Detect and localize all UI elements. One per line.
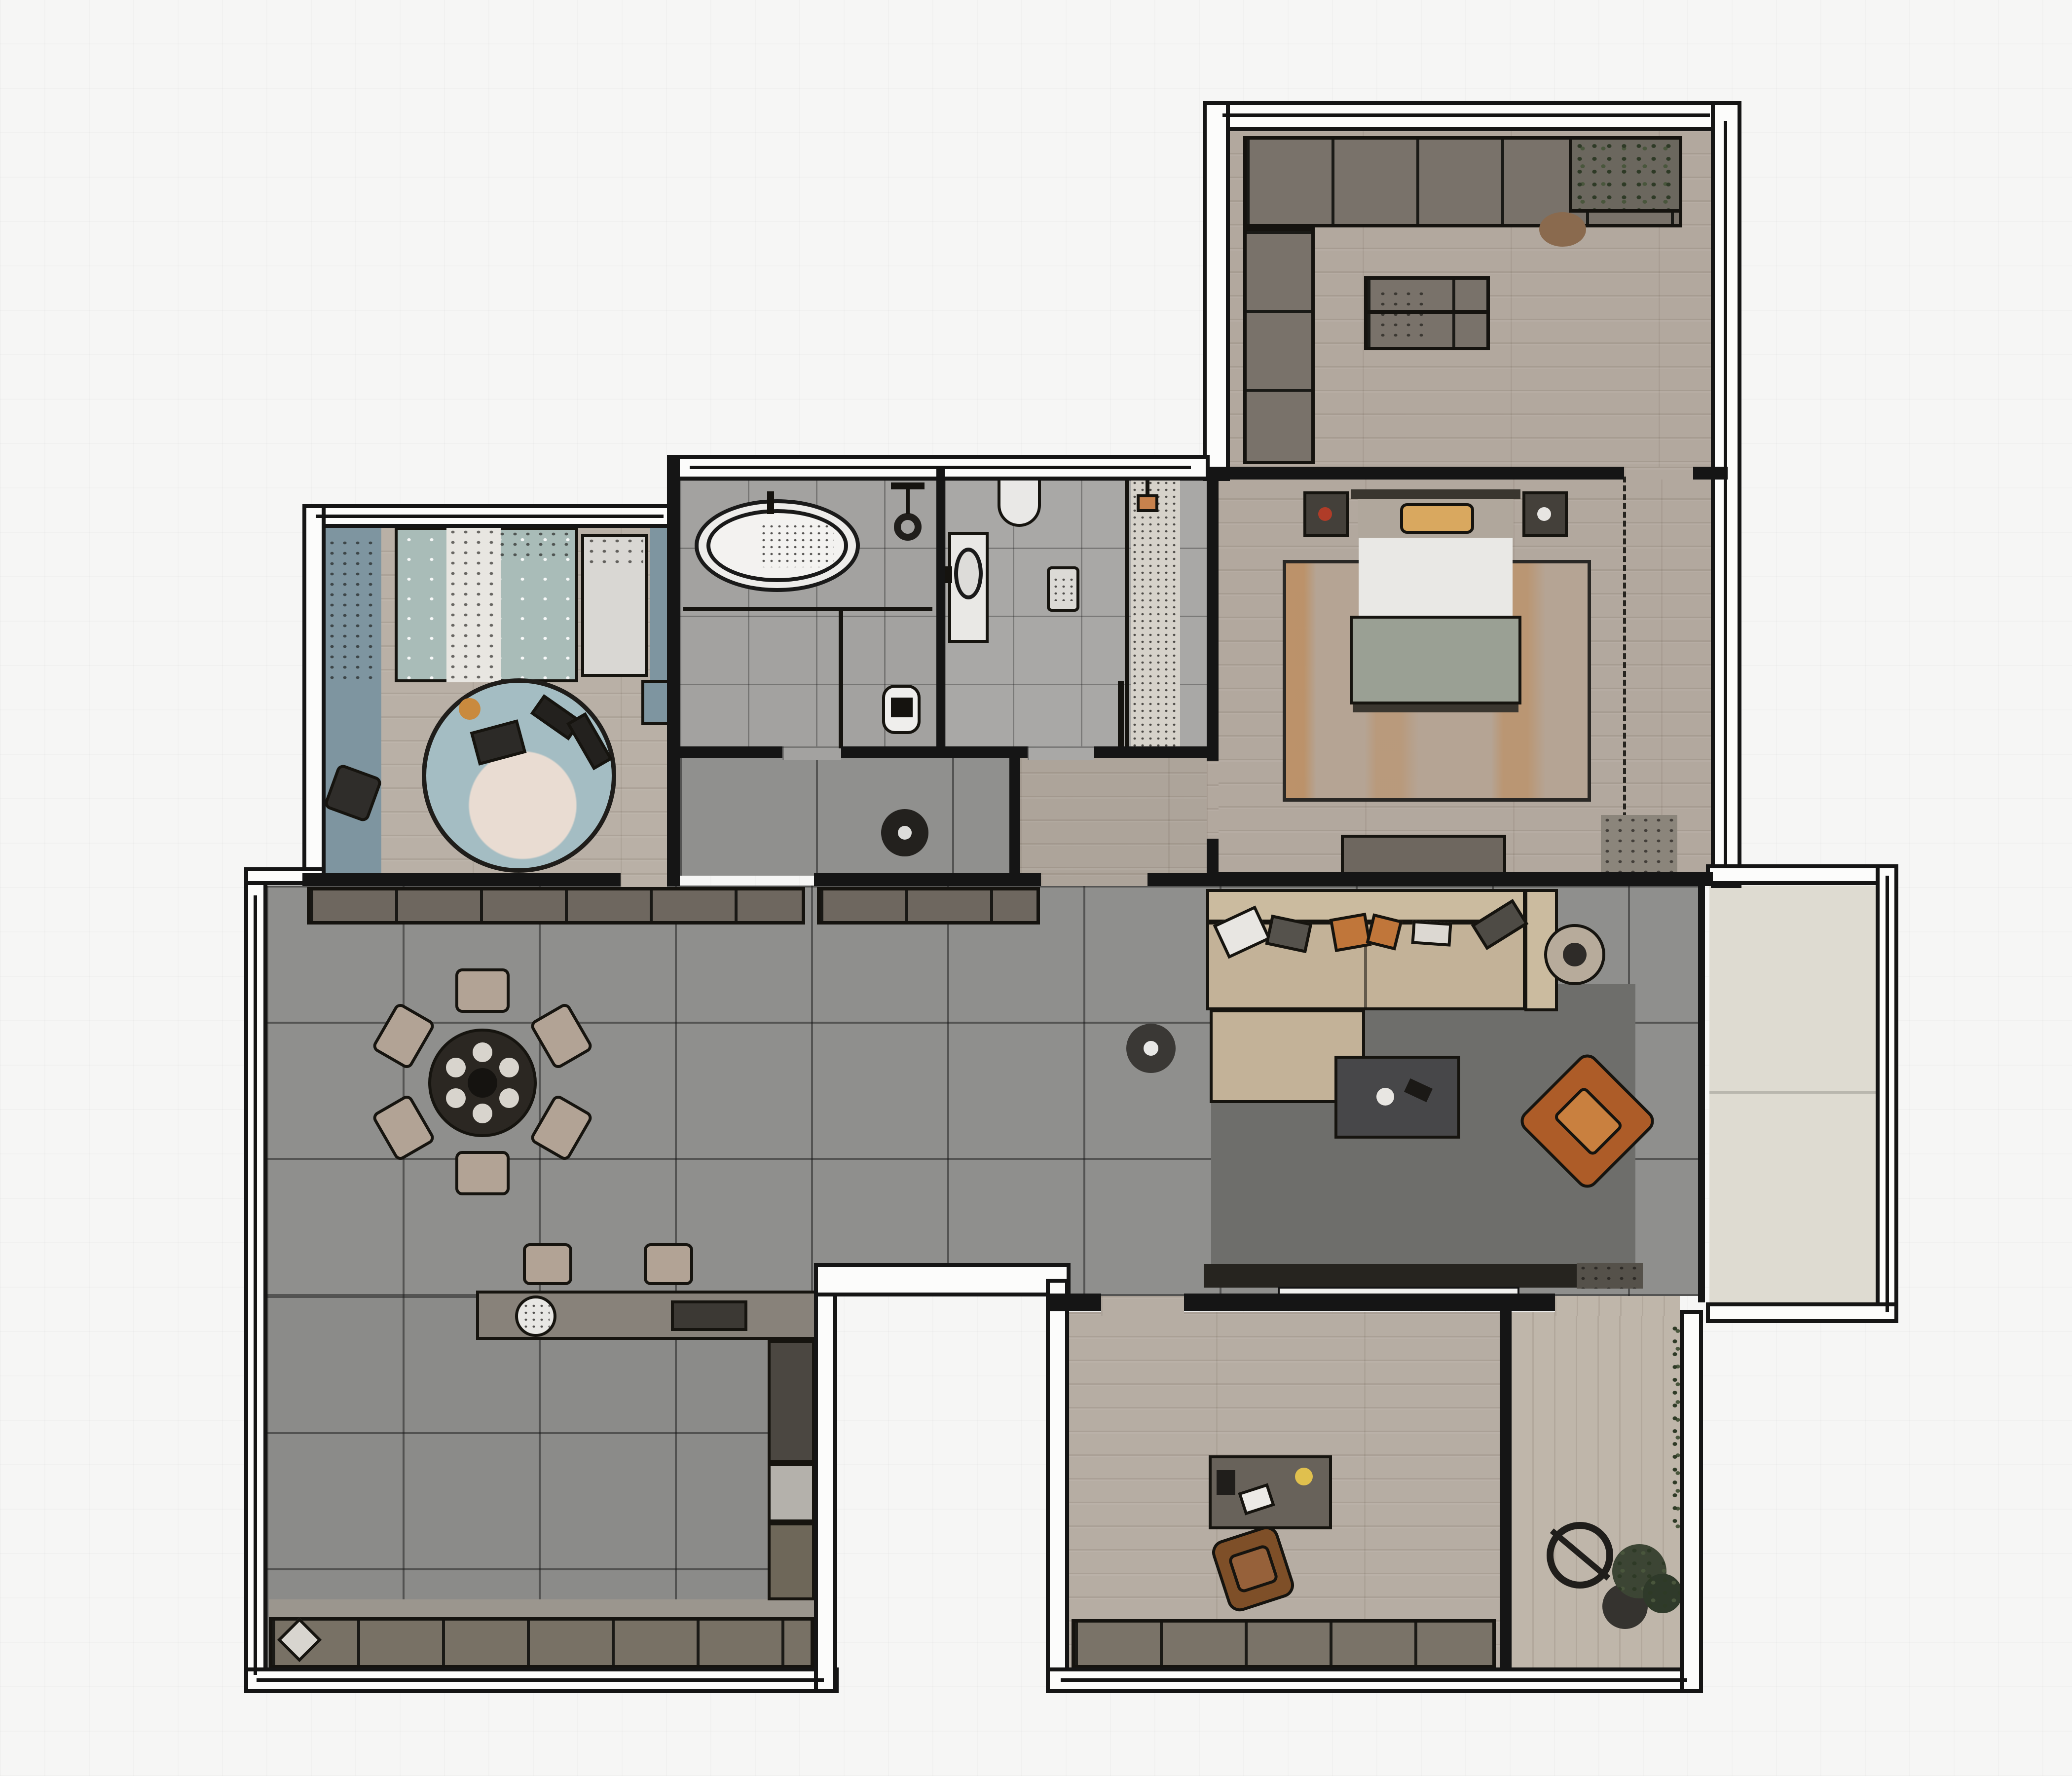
balcony-midline: [1709, 1091, 1877, 1094]
wall-kitchen-east: [814, 1279, 837, 1693]
wall-living-balcony: [1698, 886, 1705, 1302]
bath-faucet: [767, 491, 774, 514]
window-closet-north: [1222, 113, 1710, 117]
closet-island-items: [1376, 289, 1431, 338]
balcony-frame-top: [1706, 864, 1898, 885]
floor-lamp-dot: [1144, 1041, 1158, 1056]
wall-study-west: [1046, 1279, 1069, 1693]
wall-kids-bath: [667, 504, 680, 885]
study-lamp: [1295, 1468, 1313, 1485]
floor-plan: [0, 0, 2072, 1776]
bathtub-petals: [760, 523, 834, 567]
floor-patch-study-door: [1101, 1296, 1184, 1316]
bar-stool-1: [523, 1243, 572, 1285]
window-east: [1724, 121, 1727, 868]
wall-kids-south-a: [302, 873, 621, 886]
floor-patch-bedroom-door: [1207, 761, 1219, 839]
kitchen-tall-unit-1: [768, 1340, 815, 1463]
wc-toilet: [998, 478, 1041, 527]
wall-bath-divider: [936, 467, 945, 753]
wall-closet-west: [1203, 101, 1230, 481]
floor-patch-kids-door: [621, 873, 667, 888]
kids-round-rug: [422, 678, 616, 873]
wc-shower-floor: [1131, 480, 1180, 747]
hall-fan-dot: [898, 826, 912, 840]
floor-patch-corridor-neck: [1555, 1296, 1680, 1316]
wall-corridor-east: [1680, 1310, 1703, 1693]
coffee-table: [1334, 1056, 1460, 1139]
living-media-box: [1577, 1263, 1643, 1289]
shower-head: [894, 513, 922, 541]
wall-kids-south-b: [667, 873, 680, 886]
bed-blanket: [1350, 616, 1521, 704]
closet-wardrobe-left: [1243, 227, 1315, 464]
wall-closet-bedroom-b: [1693, 467, 1728, 480]
window-study-south: [1061, 1678, 1687, 1682]
bedroom-tv-console: [1341, 835, 1506, 875]
kids-bed-throw: [446, 527, 501, 682]
window-kitchen-south: [257, 1678, 824, 1682]
floor-hall-wood: [1020, 748, 1208, 875]
dining-plate-1: [473, 1042, 492, 1062]
kids-wardrobe-clothes: [585, 536, 643, 570]
floor-patch-hall-living: [1041, 873, 1147, 886]
dining-chair-4: [455, 1151, 510, 1195]
pillow-orange-1: [1330, 913, 1372, 952]
kitchen-tall-unit-3: [768, 1522, 815, 1600]
dining-plate-3: [499, 1088, 519, 1108]
sideboard-right: [817, 887, 1040, 925]
wc-shower-arm: [1146, 478, 1149, 497]
bath-glass-v: [839, 607, 843, 748]
window-bath-north: [690, 466, 1191, 469]
window-balcony-right: [1886, 876, 1889, 1312]
window-kids-north: [316, 515, 664, 518]
coffee-table-decor: [1376, 1088, 1394, 1106]
side-table-fan-center: [1563, 943, 1587, 966]
wall-kids-west: [302, 504, 326, 885]
bed-footboard: [1353, 704, 1518, 712]
wall-bedroom-south: [1207, 872, 1713, 886]
kitchen-counter-strip: [269, 1599, 814, 1617]
floor-patch-wc-door: [1028, 746, 1094, 760]
study-cabinet-row: [1072, 1619, 1496, 1668]
dining-chair-1: [455, 968, 510, 1013]
nightstand-right-lamp: [1537, 507, 1551, 521]
wall-hall-divider: [1009, 746, 1020, 886]
dining-centerpiece: [468, 1068, 497, 1098]
kids-desk-items: [326, 538, 375, 686]
wall-kids-bath-step: [667, 455, 680, 509]
wall-bath1-south-b: [841, 746, 940, 758]
floor-balcony: [1709, 886, 1877, 1302]
floor-hallway-right: [1511, 1312, 1681, 1668]
dining-plate-6: [446, 1058, 466, 1077]
kids-bed-toys: [496, 529, 577, 557]
bed-sheet: [1359, 538, 1513, 616]
wall-hall-south-b: [1147, 873, 1208, 886]
nightstand-left-lamp: [1318, 507, 1332, 521]
wall-bedroom-west-a: [1207, 467, 1219, 761]
bedroom-wardrobe-divider: [1623, 477, 1626, 871]
floor-patch-bath-door: [782, 746, 841, 760]
wc-sink: [954, 548, 983, 599]
bath-heater-screen: [891, 698, 913, 717]
kitchen-sink-dots: [522, 1302, 550, 1330]
kitchen-base-cabinets: [269, 1617, 814, 1668]
closet-pouf: [1539, 212, 1586, 247]
bath-glass-h: [683, 607, 932, 611]
bedroom-doormat: [1601, 815, 1677, 874]
wall-wc-south-b: [1094, 746, 1208, 758]
wall-void-top: [814, 1263, 1071, 1296]
balcony-frame-bottom: [1706, 1302, 1898, 1323]
wall-living-south-a: [1046, 1294, 1101, 1311]
wall-study-corridor: [1500, 1311, 1512, 1668]
wall-closet-bedroom-a: [1215, 467, 1624, 480]
kids-drawer-unit: [641, 680, 670, 725]
shower-bar: [891, 482, 925, 489]
closet-plant-shelf: [1569, 136, 1682, 213]
wall-bath1-south-a: [670, 746, 782, 758]
wall-living-south-b: [1184, 1294, 1555, 1311]
bar-stool-2: [644, 1243, 693, 1285]
wc-dryer-icon: [1052, 576, 1074, 601]
sideboard-left: [307, 887, 805, 925]
window-west: [254, 895, 257, 1675]
dining-plate-5: [446, 1088, 466, 1108]
wc-door: [1118, 681, 1124, 747]
pillow-light: [1411, 920, 1452, 946]
wall-hall-south-a: [814, 873, 1041, 886]
floor-patch-closet-door: [1624, 467, 1693, 480]
kitchen-hob: [671, 1300, 747, 1331]
bed-pillow: [1400, 503, 1474, 534]
dining-plate-4: [473, 1104, 492, 1123]
kitchen-tall-unit-2: [768, 1463, 815, 1522]
wc-glass: [1125, 480, 1129, 747]
floor-hall-tile: [680, 748, 1010, 876]
dining-plate-2: [499, 1058, 519, 1077]
kids-rug-ball: [459, 698, 481, 720]
bed-headboard: [1351, 489, 1520, 499]
study-speaker: [1217, 1470, 1235, 1495]
plant-leaves-2: [1643, 1574, 1682, 1613]
shower-arm: [906, 486, 910, 514]
